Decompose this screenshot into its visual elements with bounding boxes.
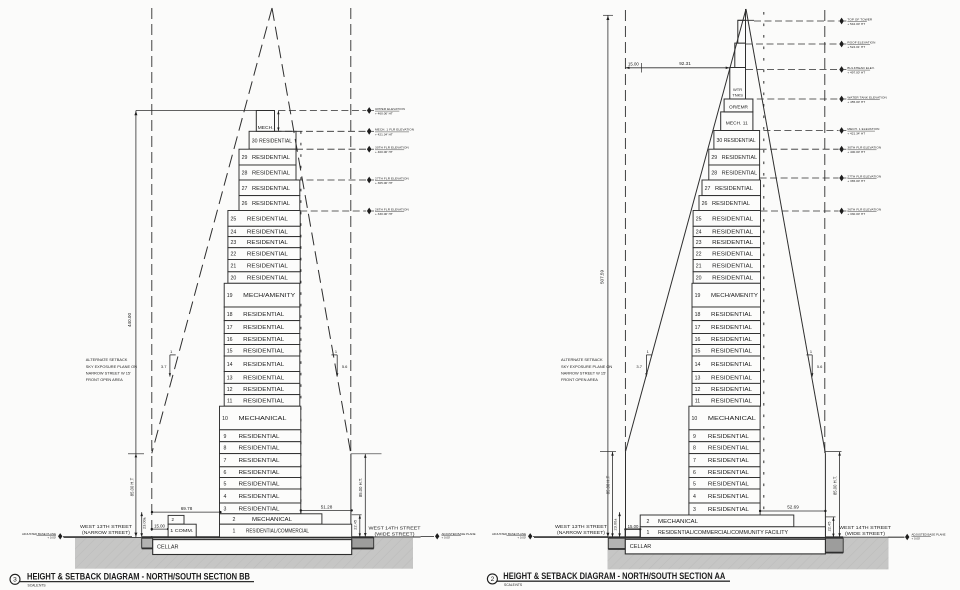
svg-text:15.00: 15.00 — [628, 62, 639, 67]
svg-text:RESIDENTIAL: RESIDENTIAL — [708, 494, 749, 500]
svg-text:SCALE:: SCALE: — [28, 583, 40, 587]
svg-text:RESIDENTIAL: RESIDENTIAL — [243, 362, 284, 368]
svg-text:+ 542.00' HT: + 542.00' HT — [847, 22, 865, 26]
svg-text:RESIDENTIAL: RESIDENTIAL — [243, 348, 284, 354]
svg-text:10: 10 — [692, 416, 698, 422]
svg-text:15.00: 15.00 — [154, 524, 165, 529]
svg-text:4: 4 — [224, 494, 227, 500]
svg-text:7: 7 — [693, 458, 696, 464]
svg-text:+ 365.00' HT: + 365.00' HT — [375, 181, 393, 185]
svg-text:WTR: WTR — [733, 87, 742, 92]
svg-text:23.00±: 23.00± — [612, 518, 617, 531]
svg-text:24: 24 — [696, 229, 702, 235]
svg-text:RESIDENTIAL: RESIDENTIAL — [247, 229, 288, 235]
svg-text:RESIDENTIAL: RESIDENTIAL — [243, 387, 284, 393]
svg-text:+ 400.00' HT: + 400.00' HT — [847, 150, 865, 154]
svg-text:RESIDENTIAL: RESIDENTIAL — [252, 186, 290, 192]
svg-text:RESIDENTIAL: RESIDENTIAL — [711, 375, 752, 381]
svg-text:20: 20 — [231, 276, 237, 282]
svg-text:5.6: 5.6 — [817, 364, 823, 369]
svg-text:1: 1 — [647, 349, 649, 354]
svg-text:RESIDENTIAL: RESIDENTIAL — [239, 506, 280, 512]
svg-text:ALTERNATE SETBACK: ALTERNATE SETBACK — [561, 357, 603, 362]
svg-text:RESIDENTIAL: RESIDENTIAL — [243, 312, 284, 318]
svg-text:SKY EXPOSURE PLANE ON: SKY EXPOSURE PLANE ON — [86, 364, 137, 369]
svg-text:28: 28 — [242, 171, 248, 177]
svg-text:52.69: 52.69 — [787, 505, 799, 510]
svg-text:RESIDENTIAL: RESIDENTIAL — [252, 155, 290, 161]
svg-text:WEST 13TH STREET: WEST 13TH STREET — [555, 524, 607, 530]
svg-text:RESIDENTIAL: RESIDENTIAL — [247, 264, 288, 270]
svg-text:+ 524.01' HT: + 524.01' HT — [847, 45, 865, 49]
svg-text:17: 17 — [227, 325, 233, 331]
svg-text:26: 26 — [702, 201, 708, 207]
svg-text:RESIDENTIAL: RESIDENTIAL — [252, 171, 290, 177]
svg-text:RESIDENTIAL: RESIDENTIAL — [243, 375, 284, 381]
svg-text:25: 25 — [231, 216, 237, 222]
svg-text:RESIDENTIAL: RESIDENTIAL — [711, 362, 752, 368]
svg-text:85.00 H.T: 85.00 H.T — [130, 477, 135, 496]
svg-text:+ 365.00' HT: + 365.00' HT — [847, 179, 865, 183]
svg-text:RESIDENTIAL: RESIDENTIAL — [259, 138, 292, 144]
svg-text:440.00: 440.00 — [127, 313, 132, 327]
svg-text:85.00 H.T.: 85.00 H.T. — [358, 478, 363, 497]
svg-text:WEST 13TH STREET: WEST 13TH STREET — [80, 524, 132, 530]
svg-text:(WIDE STREET): (WIDE STREET) — [375, 532, 415, 538]
svg-text:12: 12 — [695, 387, 701, 393]
svg-text:11: 11 — [227, 398, 232, 404]
svg-text:15.00: 15.00 — [628, 524, 639, 529]
svg-text:NTS: NTS — [516, 583, 523, 587]
svg-text:29: 29 — [242, 155, 248, 161]
svg-text:ALTERNATE SETBACK: ALTERNATE SETBACK — [86, 357, 128, 362]
svg-text:1: 1 — [170, 349, 172, 354]
svg-text:RESIDENTIAL: RESIDENTIAL — [722, 155, 757, 161]
svg-text:3: 3 — [693, 507, 696, 513]
svg-text:26TH FLR ELEVATION: 26TH FLR ELEVATION — [847, 207, 881, 211]
svg-text:TOP OF TOWER: TOP OF TOWER — [847, 17, 873, 21]
svg-text:RESIDENTIAL/COMMERCIAL/COMMUNI: RESIDENTIAL/COMMERCIAL/COMMUNITY FACILIT… — [658, 530, 789, 536]
svg-text:+ 0.00': + 0.00' — [517, 536, 526, 540]
svg-text:WEST 14TH STREET: WEST 14TH STREET — [369, 526, 421, 532]
svg-text:RESIDENTIAL: RESIDENTIAL — [712, 276, 753, 282]
svg-text:FRONT OPEN AREA: FRONT OPEN AREA — [561, 377, 598, 382]
svg-text:BULKHEAD ELEV.: BULKHEAD ELEV. — [847, 66, 875, 70]
svg-text:+ 421.34' HT: + 421.34' HT — [847, 132, 865, 136]
svg-text:9: 9 — [224, 434, 227, 440]
svg-text:28: 28 — [711, 171, 717, 177]
svg-text:3.7: 3.7 — [636, 364, 642, 369]
svg-text:13: 13 — [227, 375, 233, 381]
svg-text:MECH. 11: MECH. 11 — [726, 121, 748, 126]
svg-text:RESIDENTIAL: RESIDENTIAL — [724, 138, 756, 144]
svg-text:RESIDENTIAL: RESIDENTIAL — [239, 494, 280, 500]
svg-text:85.00 H.T.: 85.00 H.T. — [832, 476, 837, 495]
svg-text:30: 30 — [252, 138, 258, 144]
svg-text:24: 24 — [231, 229, 237, 235]
svg-text:19: 19 — [227, 293, 233, 299]
svg-text:8: 8 — [224, 446, 227, 452]
svg-text:23: 23 — [696, 240, 702, 246]
svg-text:6: 6 — [693, 470, 696, 476]
svg-text:FRONT OPEN AREA: FRONT OPEN AREA — [86, 377, 123, 382]
svg-text:16: 16 — [695, 337, 701, 343]
svg-text:RESIDENTIAL: RESIDENTIAL — [239, 470, 280, 476]
svg-text:+ 0.00': + 0.00' — [442, 536, 451, 540]
svg-text:MECHANICAL: MECHANICAL — [658, 519, 698, 525]
svg-text:9: 9 — [693, 434, 696, 440]
svg-text:MECH/AMENITY: MECH/AMENITY — [711, 293, 759, 299]
svg-text:30TH FLR ELEVATION: 30TH FLR ELEVATION — [847, 146, 881, 150]
svg-text:1: 1 — [647, 530, 650, 536]
svg-text:HEIGHT & SETBACK DIAGRAM - NOR: HEIGHT & SETBACK DIAGRAM - NORTH/SOUTH S… — [503, 571, 725, 581]
svg-text:2: 2 — [491, 576, 495, 583]
svg-text:RESIDENTIAL: RESIDENTIAL — [239, 446, 280, 452]
svg-text:RESIDENTIAL: RESIDENTIAL — [712, 216, 753, 222]
svg-text:RESIDENTIAL: RESIDENTIAL — [247, 240, 288, 246]
svg-text:12: 12 — [227, 387, 233, 393]
svg-text:RESIDENTIAL: RESIDENTIAL — [243, 325, 284, 331]
svg-text:RESIDENTIAL: RESIDENTIAL — [712, 264, 753, 270]
svg-text:NTS: NTS — [39, 583, 46, 587]
svg-text:MECH. 1 FLR ELEVATION: MECH. 1 FLR ELEVATION — [375, 128, 414, 132]
svg-text:+ 460.00' HT: + 460.00' HT — [375, 112, 393, 116]
svg-text:RESIDENTIAL: RESIDENTIAL — [711, 387, 752, 393]
svg-text:RESIDENTIAL: RESIDENTIAL — [247, 216, 288, 222]
svg-text:18: 18 — [695, 312, 701, 318]
svg-text:26: 26 — [242, 201, 248, 207]
svg-text:17: 17 — [695, 325, 701, 331]
svg-text:30: 30 — [717, 138, 723, 144]
svg-text:RESIDENTIAL: RESIDENTIAL — [708, 481, 749, 487]
svg-text:13: 13 — [695, 375, 701, 381]
svg-text:27TH FLR ELEVATION: 27TH FLR ELEVATION — [375, 176, 409, 180]
svg-text:+ 421.34' HT: + 421.34' HT — [375, 132, 393, 136]
svg-text:22.45: 22.45 — [353, 520, 358, 530]
svg-text:RESIDENTIAL: RESIDENTIAL — [711, 312, 752, 318]
svg-text:RESIDENTIAL: RESIDENTIAL — [711, 398, 752, 404]
svg-text:WATER TANK ELEVATION: WATER TANK ELEVATION — [847, 95, 886, 99]
svg-text:MECHANICAL: MECHANICAL — [239, 416, 287, 422]
svg-text:507.59: 507.59 — [600, 270, 605, 284]
svg-text:1: 1 — [335, 349, 337, 354]
svg-text:(NARROW STREET): (NARROW STREET) — [82, 530, 130, 536]
svg-text:RESIDENTIAL: RESIDENTIAL — [711, 337, 752, 343]
svg-text:NARROW STREET W 15': NARROW STREET W 15' — [86, 370, 131, 375]
svg-text:RESIDENTIAL: RESIDENTIAL — [708, 470, 749, 476]
svg-text:RESIDENTIAL: RESIDENTIAL — [708, 446, 749, 452]
svg-text:NARROW STREET W 15': NARROW STREET W 15' — [561, 370, 606, 375]
svg-text:51.28: 51.28 — [321, 504, 333, 509]
svg-text:3: 3 — [224, 506, 227, 512]
svg-text:RESIDENTIAL: RESIDENTIAL — [247, 276, 288, 282]
svg-text:WEST 14TH STREET: WEST 14TH STREET — [839, 525, 891, 531]
svg-text:2: 2 — [647, 519, 650, 525]
svg-text:3: 3 — [13, 577, 17, 584]
svg-text:85.00 H.T: 85.00 H.T — [606, 475, 611, 494]
svg-text:MECHANICAL: MECHANICAL — [252, 517, 292, 523]
svg-text:1: 1 — [810, 349, 812, 354]
svg-text:1: 1 — [233, 529, 236, 535]
svg-text:26TH FLR ELEVATION: 26TH FLR ELEVATION — [375, 207, 409, 211]
svg-text:27: 27 — [242, 186, 248, 192]
svg-text:MECH.: MECH. — [258, 125, 274, 131]
svg-text:22: 22 — [231, 252, 237, 258]
svg-text:+ 330.00' HT: + 330.00' HT — [847, 212, 865, 216]
svg-text:RESIDENTIAL: RESIDENTIAL — [712, 201, 750, 207]
svg-text:RESIDENTIAL: RESIDENTIAL — [712, 240, 753, 246]
svg-text:SKY EXPOSURE PLANE ON: SKY EXPOSURE PLANE ON — [561, 364, 612, 369]
svg-text:18: 18 — [227, 312, 233, 318]
svg-text:OR/EMR: OR/EMR — [729, 104, 748, 109]
svg-text:MECHANICAL: MECHANICAL — [708, 416, 756, 422]
svg-text:UPPER ELEVATION: UPPER ELEVATION — [375, 107, 405, 111]
svg-text:RESIDENTIAL: RESIDENTIAL — [239, 434, 280, 440]
svg-text:SCALE:: SCALE: — [504, 583, 516, 587]
svg-text:19: 19 — [695, 293, 701, 299]
svg-text:20: 20 — [696, 276, 702, 282]
svg-text:69.78: 69.78 — [181, 506, 193, 511]
svg-text:RESIDENTIAL: RESIDENTIAL — [252, 201, 290, 207]
svg-text:+ 0.00': + 0.00' — [912, 536, 921, 540]
svg-text:10: 10 — [222, 416, 228, 422]
svg-text:3.7: 3.7 — [161, 364, 167, 369]
svg-text:(NARROW STREET): (NARROW STREET) — [557, 530, 605, 536]
svg-text:CELLAR: CELLAR — [630, 544, 652, 550]
svg-text:4: 4 — [693, 494, 696, 500]
svg-text:16: 16 — [227, 337, 233, 343]
svg-text:1 COMM.: 1 COMM. — [170, 528, 193, 533]
svg-text:29: 29 — [711, 155, 717, 161]
svg-text:ROOF ELEVATION: ROOF ELEVATION — [847, 40, 875, 44]
svg-text:RESIDENTIAL: RESIDENTIAL — [247, 252, 288, 258]
svg-text:21: 21 — [696, 264, 702, 270]
svg-text:5: 5 — [224, 481, 227, 487]
svg-text:TNKS: TNKS — [732, 93, 743, 98]
svg-text:27: 27 — [705, 186, 711, 192]
svg-text:(WIDE STREET): (WIDE STREET) — [845, 531, 885, 537]
svg-text:5: 5 — [693, 481, 696, 487]
svg-text:RESIDENTIAL: RESIDENTIAL — [239, 458, 280, 464]
svg-text:RESIDENTIAL: RESIDENTIAL — [711, 348, 752, 354]
svg-text:RESIDENTIAL: RESIDENTIAL — [712, 229, 753, 235]
svg-text:27TH FLR ELEVATION: 27TH FLR ELEVATION — [847, 174, 881, 178]
svg-text:23: 23 — [231, 240, 237, 246]
svg-text:RESIDENTIAL: RESIDENTIAL — [708, 458, 749, 464]
svg-text:MECH/AMENITY: MECH/AMENITY — [243, 293, 296, 299]
svg-text:RESIDENTIAL: RESIDENTIAL — [715, 186, 753, 192]
svg-text:14: 14 — [695, 362, 701, 368]
svg-text:5.6: 5.6 — [342, 364, 348, 369]
svg-text:RESIDENTIAL: RESIDENTIAL — [239, 481, 280, 487]
svg-text:MECH. 1 ELEVATION: MECH. 1 ELEVATION — [847, 127, 879, 131]
svg-text:+ 400.00' HT: + 400.00' HT — [375, 150, 393, 154]
svg-text:RESIDENTIAL: RESIDENTIAL — [712, 252, 753, 258]
svg-text:7: 7 — [224, 458, 227, 464]
svg-text:+ 0.00': + 0.00' — [47, 536, 56, 540]
svg-text:8: 8 — [693, 446, 696, 452]
svg-text:RESIDENTIAL: RESIDENTIAL — [722, 171, 757, 177]
svg-text:RESIDENTIAL/COMMERCIAL: RESIDENTIAL/COMMERCIAL — [246, 529, 309, 535]
svg-text:92.31: 92.31 — [679, 61, 691, 66]
svg-text:25: 25 — [696, 216, 702, 222]
svg-text:6: 6 — [224, 470, 227, 476]
svg-text:11: 11 — [695, 398, 700, 404]
svg-text:14: 14 — [227, 362, 233, 368]
svg-text:15: 15 — [227, 348, 233, 354]
svg-text:15: 15 — [695, 348, 701, 354]
svg-text:+ 497.00' HT: + 497.00' HT — [847, 71, 865, 75]
svg-text:RESIDENTIAL: RESIDENTIAL — [243, 337, 284, 343]
svg-text:RESIDENTIAL: RESIDENTIAL — [711, 325, 752, 331]
svg-text:23.00±: 23.00± — [142, 516, 147, 529]
svg-text:HEIGHT & SETBACK DIAGRAM - NOR: HEIGHT & SETBACK DIAGRAM - NORTH/SOUTH S… — [27, 572, 250, 582]
svg-text:CELLAR: CELLAR — [157, 544, 179, 550]
svg-text:30TH FLR ELEVATION: 30TH FLR ELEVATION — [375, 146, 409, 150]
svg-text:+ 455.00' HT: + 455.00' HT — [847, 100, 865, 104]
svg-text:RESIDENTIAL: RESIDENTIAL — [708, 507, 749, 513]
svg-text:RESIDENTIAL: RESIDENTIAL — [708, 434, 749, 440]
svg-text:22.45: 22.45 — [826, 522, 831, 532]
svg-text:+ 330.00' HT: + 330.00' HT — [375, 212, 393, 216]
svg-text:22: 22 — [696, 252, 702, 258]
svg-text:21: 21 — [231, 264, 237, 270]
svg-text:RESIDENTIAL: RESIDENTIAL — [243, 398, 284, 404]
svg-text:2: 2 — [233, 517, 236, 523]
